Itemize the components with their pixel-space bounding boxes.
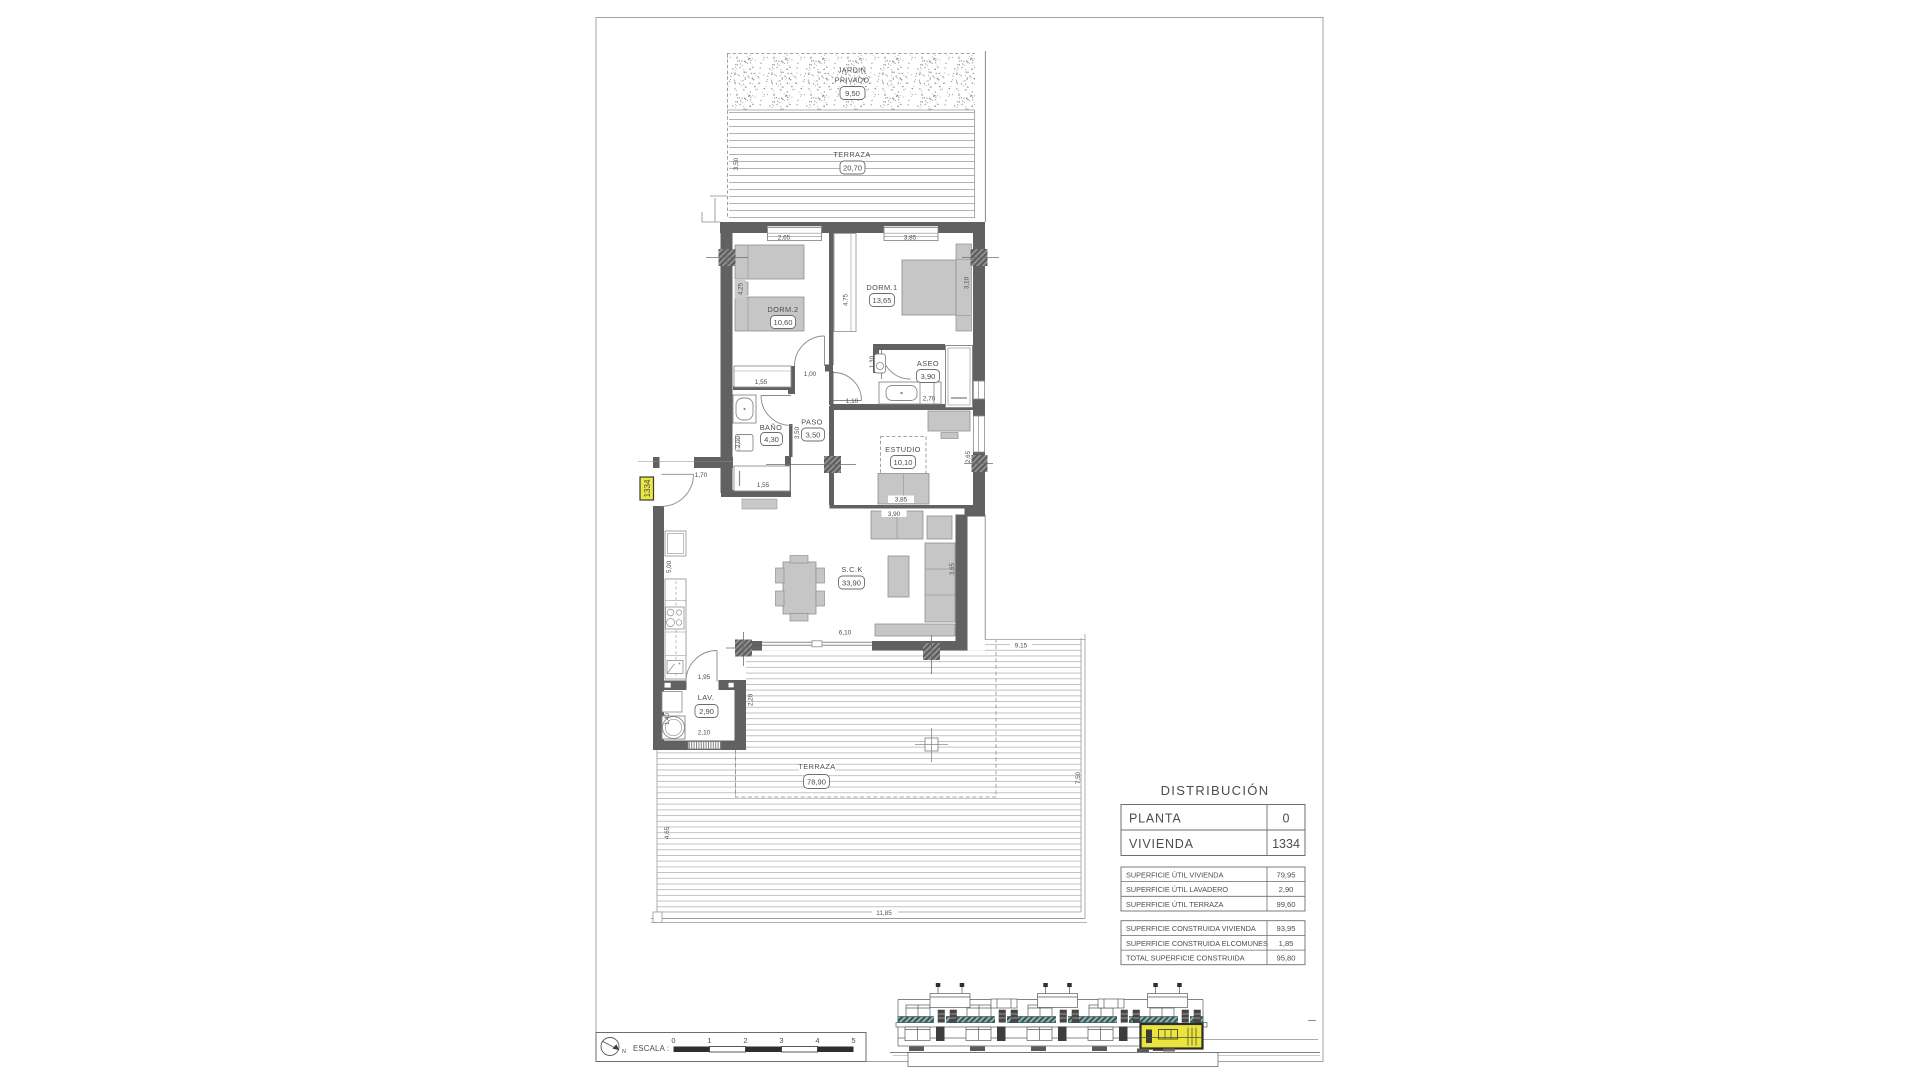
svg-text:3,50: 3,50 [806,431,821,440]
svg-text:2,90: 2,90 [1279,885,1294,894]
svg-text:0: 0 [671,1036,675,1045]
svg-text:3,85: 3,85 [904,235,917,242]
svg-text:1: 1 [707,1036,711,1045]
svg-text:LAV.: LAV. [698,693,714,702]
svg-text:10,60: 10,60 [773,318,792,327]
svg-text:S.C.K: S.C.K [841,565,862,574]
svg-text:SUPERFICIE ÚTIL LAVADERO: SUPERFICIE ÚTIL LAVADERO [1126,885,1228,894]
svg-text:SUPERFICIE CONSTRUIDA VIVIENDA: SUPERFICIE CONSTRUIDA VIVIENDA [1126,924,1256,933]
svg-text:1334: 1334 [1272,837,1300,851]
svg-text:3: 3 [779,1036,783,1045]
svg-text:3,10: 3,10 [964,276,971,289]
svg-text:JARDIN: JARDIN [838,66,866,75]
svg-text:PASO: PASO [801,418,823,427]
svg-text:VIVIENDA: VIVIENDA [1129,837,1194,851]
svg-text:3,90: 3,90 [921,372,936,381]
svg-text:1,95: 1,95 [698,674,711,681]
svg-text:BAÑO: BAÑO [760,423,783,432]
svg-text:1,85: 1,85 [1279,939,1294,948]
svg-text:11,85: 11,85 [876,910,892,917]
svg-text:2,65: 2,65 [965,450,972,463]
svg-text:PLANTA: PLANTA [1129,812,1182,826]
svg-text:6,10: 6,10 [839,630,852,637]
svg-text:20,70: 20,70 [843,164,862,173]
svg-text:2,70: 2,70 [923,396,936,403]
svg-text:2: 2 [743,1036,747,1045]
svg-text:3,90: 3,90 [888,511,901,518]
svg-text:2,90: 2,90 [699,707,714,716]
svg-text:2,65: 2,65 [778,235,791,242]
svg-text:3,50: 3,50 [794,426,801,439]
svg-text:PRIVADO: PRIVADO [835,76,870,85]
svg-text:1,40: 1,40 [665,713,671,725]
svg-text:2,10: 2,10 [698,730,711,737]
svg-text:SUPERFICIE ÚTIL VIVIENDA: SUPERFICIE ÚTIL VIVIENDA [1126,871,1224,880]
svg-text:2,20: 2,20 [748,693,755,706]
svg-text:TERRAZA: TERRAZA [833,150,870,159]
svg-text:2,00: 2,00 [736,436,742,448]
svg-text:SUPERFICIE CONSTRUIDA ELCOMUNE: SUPERFICIE CONSTRUIDA ELCOMUNES [1126,939,1268,948]
svg-text:TERRAZA: TERRAZA [798,762,835,771]
svg-text:9,50: 9,50 [845,89,860,98]
svg-text:4: 4 [815,1036,819,1045]
svg-text:DORM.2: DORM.2 [767,305,798,314]
svg-text:7,50: 7,50 [1075,771,1082,784]
svg-text:1,10: 1,10 [846,398,859,405]
svg-text:33,90: 33,90 [842,579,861,588]
svg-text:ESCALA :: ESCALA : [633,1044,669,1053]
svg-text:0: 0 [1283,812,1290,826]
svg-text:79,95: 79,95 [1276,871,1295,880]
svg-text:DISTRIBUCIÓN: DISTRIBUCIÓN [1161,783,1270,798]
svg-text:ESTUDIO: ESTUDIO [885,445,921,454]
svg-text:99,60: 99,60 [1276,900,1295,909]
svg-text:13,65: 13,65 [872,296,891,305]
svg-text:93,95: 93,95 [1276,924,1295,933]
svg-text:4,65: 4,65 [664,826,671,839]
svg-text:10,10: 10,10 [893,458,912,467]
svg-text:4,25: 4,25 [738,282,745,295]
svg-text:ASEO: ASEO [917,359,939,368]
svg-text:TOTAL SUPERFICIE CONSTRUIDA: TOTAL SUPERFICIE CONSTRUIDA [1126,954,1245,963]
svg-text:1334: 1334 [643,479,652,497]
svg-text:4,75: 4,75 [843,293,850,306]
svg-text:1,70: 1,70 [695,472,708,479]
svg-text:1,00: 1,00 [804,371,817,378]
svg-text:3,85: 3,85 [895,497,908,504]
svg-text:DORM.1: DORM.1 [866,283,897,292]
svg-text:5,00: 5,00 [666,560,673,573]
svg-text:5: 5 [851,1036,855,1045]
svg-text:78,90: 78,90 [807,778,826,787]
svg-text:3,65: 3,65 [949,562,956,575]
svg-text:4,30: 4,30 [764,435,779,444]
svg-text:95,80: 95,80 [1276,954,1295,963]
svg-text:1,30: 1,30 [869,355,876,368]
svg-text:1,55: 1,55 [755,379,768,386]
svg-text:9,15: 9,15 [1015,643,1028,650]
svg-text:N: N [622,1049,626,1055]
svg-text:SUPERFICIE ÚTIL TERRAZA: SUPERFICIE ÚTIL TERRAZA [1126,900,1223,909]
svg-text:3,50: 3,50 [733,157,740,170]
svg-text:1,55: 1,55 [757,482,770,489]
